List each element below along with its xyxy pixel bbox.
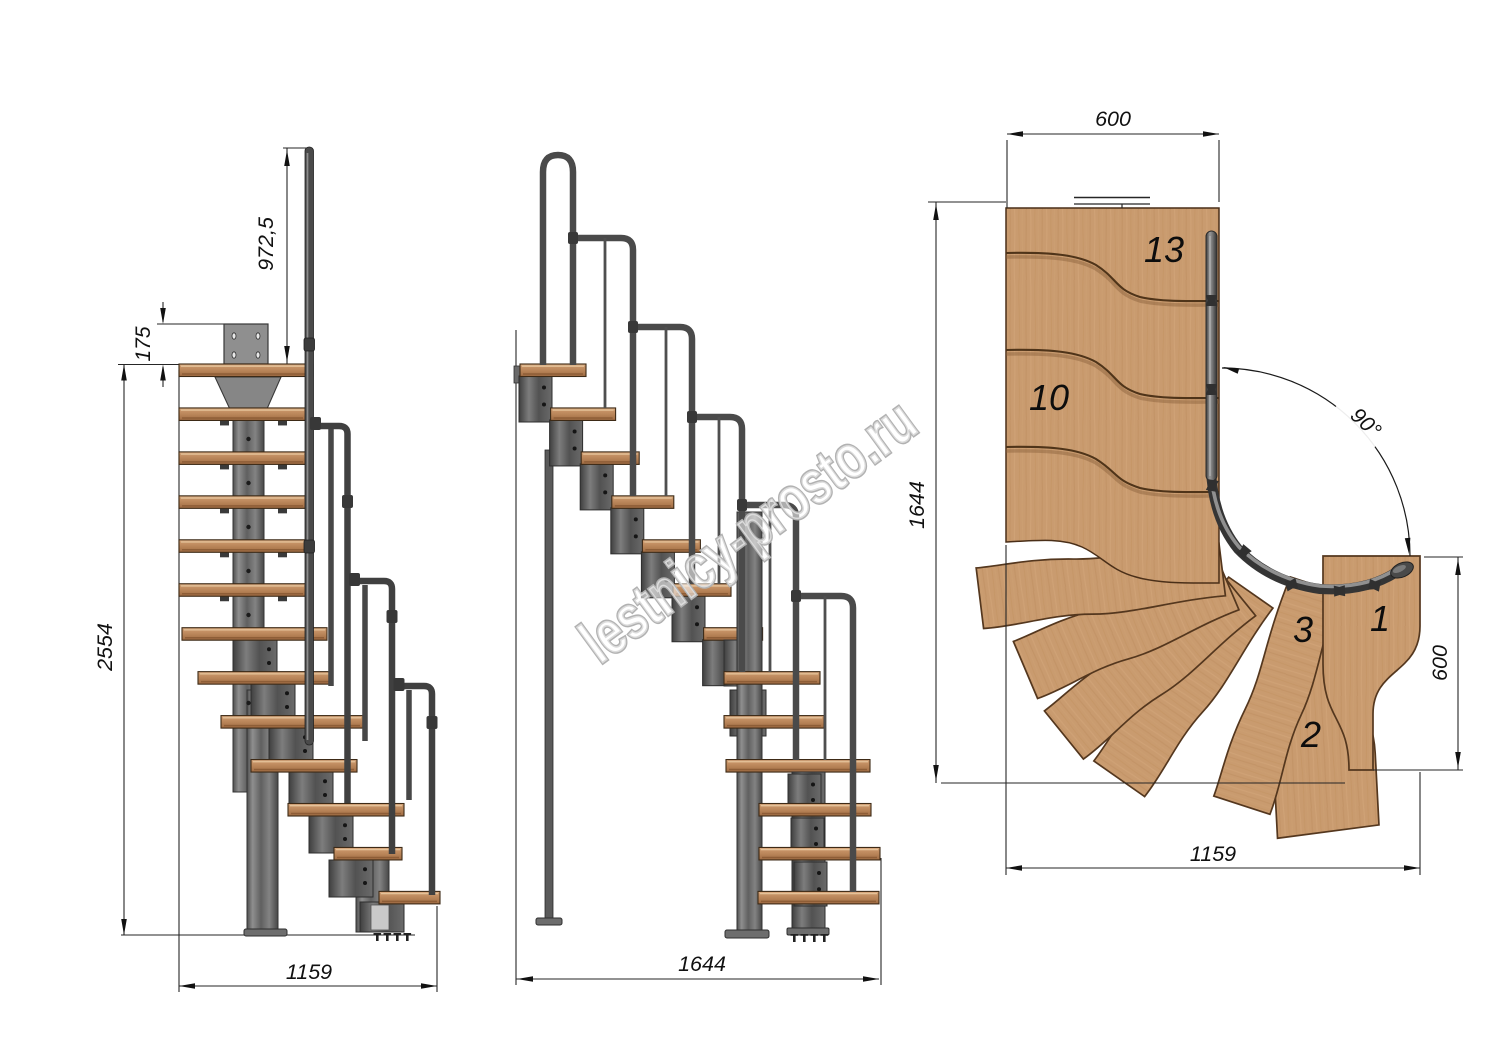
svg-text:3: 3 <box>1293 609 1313 650</box>
svg-text:1644: 1644 <box>905 481 929 529</box>
svg-text:10: 10 <box>1029 377 1069 418</box>
svg-text:1159: 1159 <box>1190 842 1236 866</box>
svg-text:972,5: 972,5 <box>254 216 278 271</box>
svg-text:13: 13 <box>1144 229 1184 270</box>
svg-text:1644: 1644 <box>678 952 726 976</box>
svg-text:1159: 1159 <box>286 960 332 984</box>
svg-text:2: 2 <box>1300 714 1321 755</box>
svg-text:2554: 2554 <box>93 623 117 672</box>
svg-text:600: 600 <box>1095 107 1131 131</box>
svg-text:175: 175 <box>132 326 155 361</box>
svg-text:1: 1 <box>1370 598 1390 639</box>
svg-text:600: 600 <box>1428 645 1452 681</box>
